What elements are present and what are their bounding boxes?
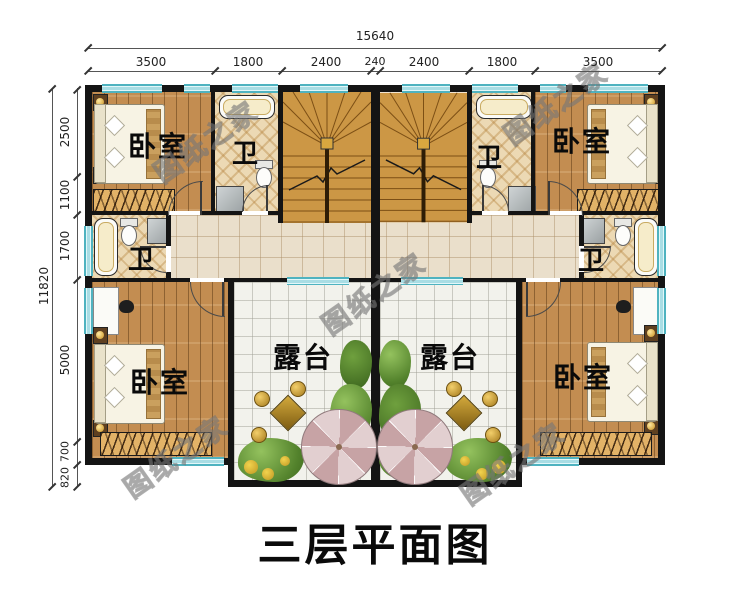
- pillow: [627, 385, 648, 406]
- terrace-door: [287, 277, 349, 285]
- dimension-left-segment: 2500: [58, 102, 72, 162]
- wall-stair-bathTR: [467, 92, 472, 223]
- dimension-left-segment: 1700: [58, 216, 72, 276]
- bathroom-label: 卫: [128, 240, 156, 277]
- bedroom-label: 卧室: [553, 356, 613, 396]
- desk-chair: [119, 300, 134, 313]
- patio-umbrella: [377, 409, 453, 485]
- dimension-line: [88, 48, 662, 49]
- patio-chair: [251, 427, 267, 443]
- bathtub: [634, 218, 658, 276]
- pillow: [104, 115, 125, 136]
- flower: [244, 460, 258, 474]
- window: [84, 226, 93, 276]
- toilet: [613, 218, 631, 245]
- terrace-label: 露台: [420, 336, 480, 376]
- dimension-line: [88, 71, 662, 72]
- dimension-line: [77, 88, 78, 487]
- window: [402, 84, 450, 93]
- staircase-right: [380, 92, 467, 223]
- wall-bathTL-stair: [278, 92, 283, 223]
- plant: [340, 340, 372, 388]
- window: [184, 84, 210, 93]
- bathroom-label: 卫: [578, 241, 606, 278]
- door-leaf: [200, 181, 202, 215]
- window: [657, 288, 666, 334]
- dimension-top-total: 15640: [345, 29, 405, 43]
- window: [300, 84, 348, 93]
- dimension-top-segment: 2400: [394, 55, 454, 69]
- dimension-tick: [658, 44, 666, 52]
- floor-plan-canvas: 卧室 卧室 卧室 卧室 卫 卫 卫 卫 露台 露台 图纸之家 图纸之家 图纸之家…: [0, 0, 750, 601]
- window: [102, 84, 162, 93]
- dimension-tick: [48, 483, 56, 491]
- patio-umbrella: [301, 409, 377, 485]
- window: [84, 288, 93, 334]
- door-leaf: [548, 181, 550, 215]
- dimension-tick: [73, 483, 81, 491]
- nightstand: [93, 327, 108, 344]
- dimension-left-segment: 5000: [58, 330, 72, 390]
- bathtub: [94, 218, 118, 276]
- floor-plan-title: 三层平面图: [258, 509, 493, 573]
- wall-terrace-left: [228, 282, 234, 487]
- flower: [262, 468, 274, 480]
- patio-chair: [482, 391, 498, 407]
- patio-chair: [290, 381, 306, 397]
- dimension-top-segment: 1800: [218, 55, 278, 69]
- window: [472, 84, 518, 93]
- bedroom-label: 卧室: [552, 120, 612, 160]
- pillow: [627, 147, 648, 168]
- bathroom-label: 卫: [476, 138, 504, 175]
- dimension-line: [52, 88, 53, 487]
- dimension-left-total: 11820: [37, 256, 51, 316]
- flower: [460, 456, 470, 466]
- dimension-top-segment: 3500: [568, 55, 628, 69]
- patio-chair: [485, 427, 501, 443]
- pillow: [104, 387, 125, 408]
- dimension-left-segment: 820: [59, 448, 72, 508]
- terrace-label: 露台: [273, 336, 333, 376]
- pillow: [627, 115, 648, 136]
- staircase-left: [283, 92, 371, 223]
- window: [657, 226, 666, 276]
- pillow: [104, 147, 125, 168]
- patio-chair: [254, 391, 270, 407]
- door-leaf: [222, 282, 224, 316]
- door-leaf: [482, 185, 484, 211]
- flower: [280, 456, 290, 466]
- toilet-bowl: [615, 225, 631, 246]
- dimension-top-segment: 1800: [472, 55, 532, 69]
- pillow: [104, 355, 125, 376]
- desk-chair: [616, 300, 631, 313]
- door-leaf: [526, 282, 528, 316]
- dimension-top-segment: 3500: [121, 55, 181, 69]
- door-leaf: [266, 185, 268, 211]
- bedroom-label: 卧室: [130, 361, 190, 401]
- pillow: [627, 353, 648, 374]
- plant: [379, 340, 411, 388]
- dimension-tick: [658, 67, 666, 75]
- patio-chair: [446, 381, 462, 397]
